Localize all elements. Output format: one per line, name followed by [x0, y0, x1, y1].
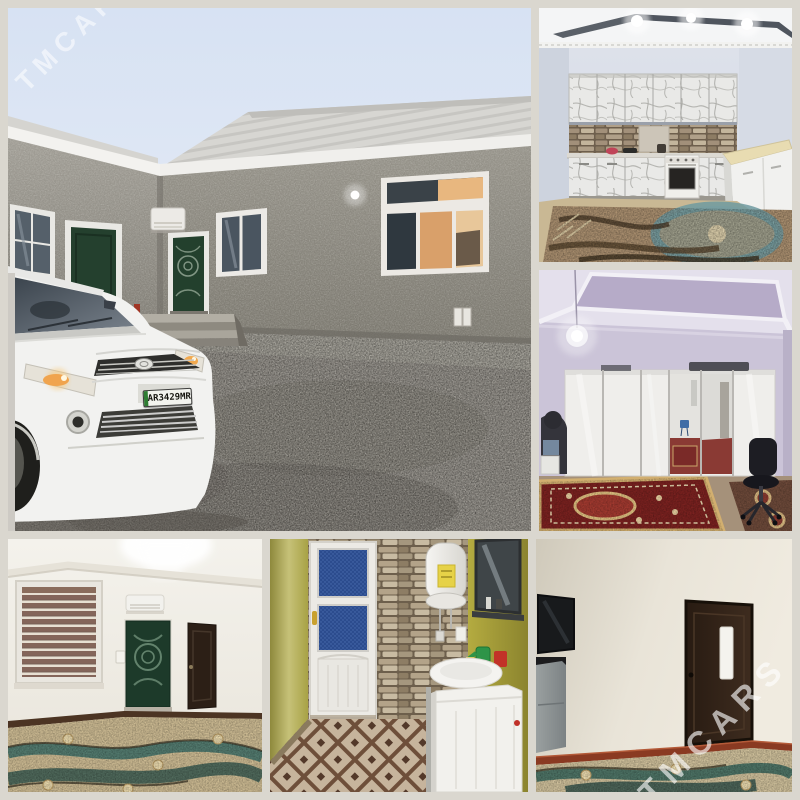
left-edge-wall: [8, 273, 15, 531]
wardrobe-mirrored: [565, 362, 775, 476]
dark-door: [686, 601, 752, 745]
reflected-chair: [680, 420, 689, 428]
tv-stand-cabinet: [536, 657, 566, 753]
red-carpet: [539, 477, 723, 531]
kitchen-floor-rug: [539, 198, 792, 262]
heater-label: [438, 565, 455, 587]
brown-door: [188, 623, 216, 709]
mirror-panel-2: [702, 374, 732, 474]
door-handle: [312, 611, 317, 625]
storage-pile: [541, 411, 567, 474]
blue-glass-upper: [318, 549, 368, 597]
red-mark: [514, 720, 520, 726]
mirror-panel-1: [670, 374, 700, 474]
window-mid: [216, 208, 267, 277]
bedroom-scene: [539, 270, 792, 531]
photo-tv-room: TMCARS: [536, 539, 792, 792]
ac-unit: [126, 595, 164, 614]
photo-bathroom: [270, 539, 528, 792]
corner-shade: [783, 330, 792, 480]
kettle: [657, 144, 666, 153]
tv-room-scene: [536, 539, 792, 792]
toyota-emblem: [135, 359, 153, 370]
license-plate: AR3429MR: [143, 388, 193, 408]
door-ornate-green: [168, 231, 209, 317]
gas-stove: [665, 155, 699, 198]
kitchen-left-wall: [539, 48, 569, 202]
wall-lamp: [344, 184, 366, 206]
backsplash: [569, 125, 737, 153]
mirror-shelf: [472, 539, 524, 621]
reflected-door: [720, 382, 729, 438]
plate-number: AR3429MR: [147, 389, 191, 406]
photo-bedroom-wardrobe: [539, 270, 792, 531]
kitchen-ceiling: [539, 8, 792, 48]
photo-house-exterior: AR3429MR TMCARS: [8, 8, 531, 531]
light-switch: [116, 651, 125, 663]
house-exterior-scene: [8, 8, 531, 531]
hallway-scene: [8, 539, 262, 792]
ac-unit: [151, 208, 185, 233]
photo-hallway-room: [8, 539, 262, 792]
black-pan: [623, 148, 637, 153]
lower-cabinets: [569, 158, 737, 201]
bathroom-door: [310, 542, 376, 719]
door-handle: [689, 673, 694, 678]
window-lit: [381, 171, 489, 276]
photo-kitchen: [539, 8, 792, 262]
bathroom-scene: [270, 539, 528, 792]
washing-machine: [426, 685, 522, 792]
door-glass-slot: [720, 627, 733, 679]
window-zebra-blinds: [14, 581, 104, 689]
upper-cabinets: [569, 74, 737, 125]
electric-box: [454, 308, 471, 326]
photo-collage: AR3429MR TMCARS: [0, 0, 800, 800]
green-door: [124, 619, 172, 712]
blue-glass-lower: [318, 605, 368, 651]
red-bowl: [606, 148, 618, 155]
items-on-top: [689, 362, 749, 371]
kitchen-right-wall: [739, 48, 792, 152]
kitchen-scene: [539, 8, 792, 262]
patterned-carpet: [8, 717, 262, 792]
fog-light: [67, 411, 89, 433]
wall-tv: [538, 595, 574, 653]
